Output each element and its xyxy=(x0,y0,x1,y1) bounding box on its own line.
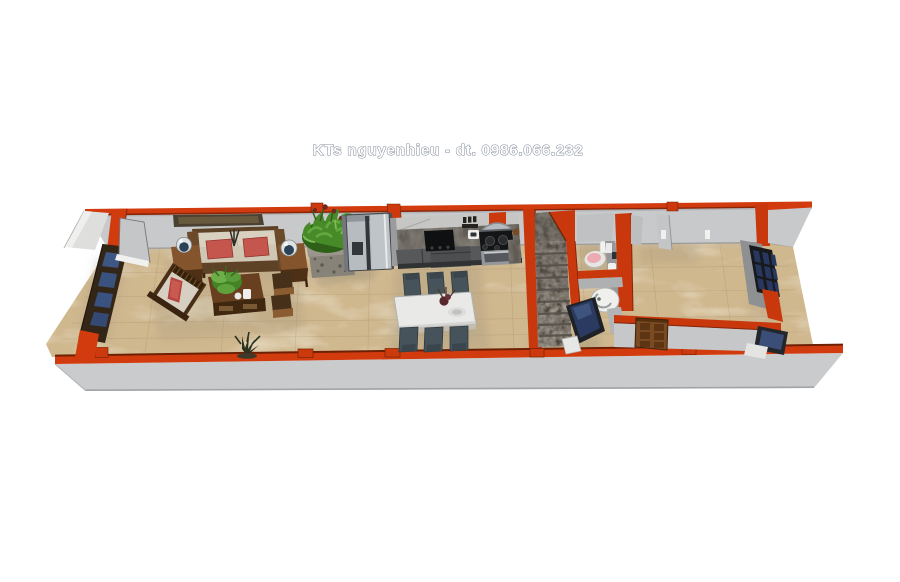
svg-text:KTs nguyenhieu - dt. 0986.066.: KTs nguyenhieu - dt. 0986.066.232 xyxy=(313,142,584,159)
